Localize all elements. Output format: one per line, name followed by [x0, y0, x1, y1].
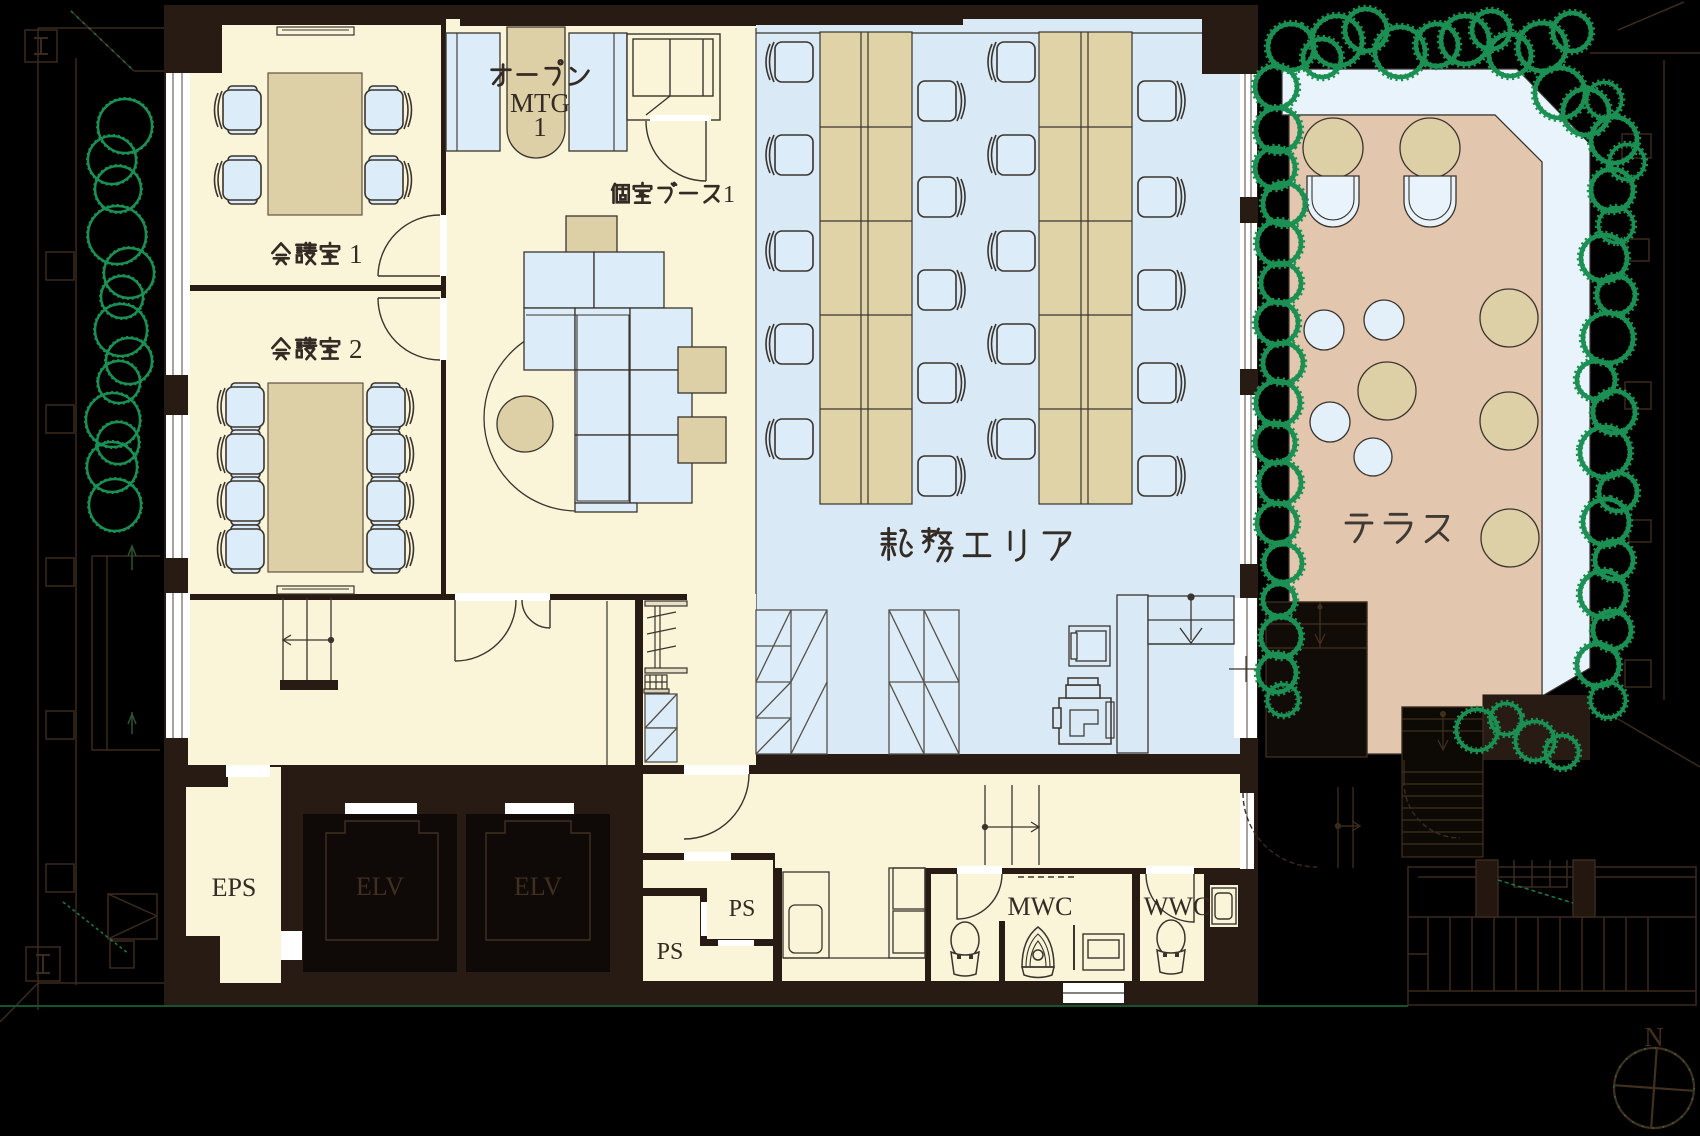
svg-text:N: N [1644, 1022, 1664, 1052]
svg-text:1: 1 [349, 239, 363, 269]
svg-text:PS: PS [657, 939, 684, 965]
svg-text:1: 1 [723, 182, 735, 208]
svg-text:ELV: ELV [356, 872, 404, 901]
svg-text:PS: PS [729, 896, 756, 922]
svg-text:2: 2 [349, 334, 363, 364]
svg-text:MWC: MWC [1008, 892, 1073, 921]
svg-text:ELV: ELV [514, 872, 562, 901]
svg-text:WWC: WWC [1144, 892, 1210, 921]
svg-text:EPS: EPS [212, 873, 257, 902]
svg-text:1: 1 [533, 112, 547, 142]
